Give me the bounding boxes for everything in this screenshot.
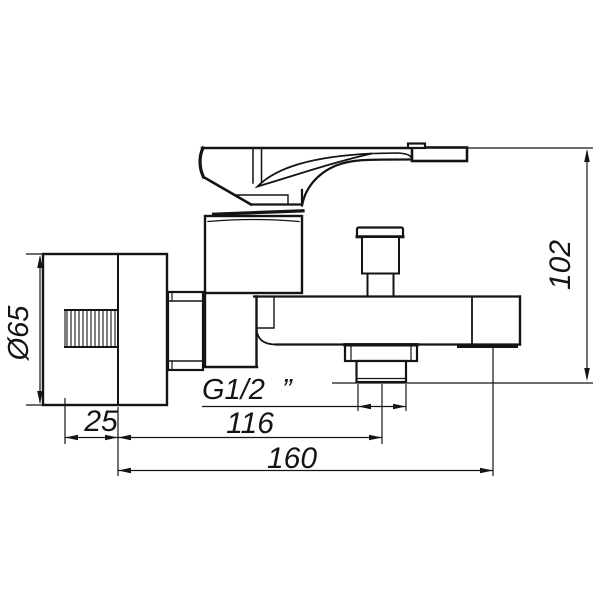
dim-label-shower-outlet-offset: 116 <box>226 407 274 440</box>
faucet-outline <box>43 144 520 406</box>
handle-skirt-line <box>214 211 304 214</box>
dim-label-overall-height: 102 <box>544 240 577 290</box>
wall-flange <box>43 254 167 405</box>
bath-mixer-drawing: Ø65 25 116 160 102 G1/2 ” <box>0 0 600 600</box>
cartridge-housing <box>205 216 302 293</box>
dim-label-wall-thread-length: 25 <box>83 405 118 438</box>
diverter-knob <box>357 228 403 297</box>
lever-paddle <box>258 154 373 187</box>
shower-outlet <box>345 345 417 383</box>
dim-label-connection-thread: G1/2 <box>202 374 265 406</box>
lever-handle <box>200 144 467 215</box>
dim-label-flange-diameter: Ø65 <box>3 305 35 362</box>
dim-label-connection-thread-quote: ” <box>282 374 293 406</box>
body-fillet <box>257 329 277 345</box>
technical-drawing-canvas: Ø65 25 116 160 102 G1/2 ” <box>0 0 600 600</box>
dim-label-overall-length: 160 <box>267 442 317 475</box>
eccentric-nut <box>168 292 205 370</box>
